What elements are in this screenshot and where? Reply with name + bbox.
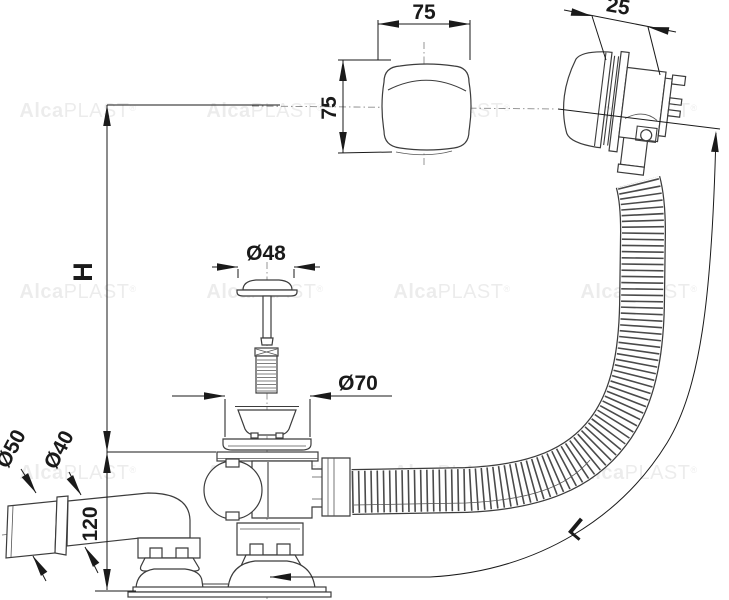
ext-line (648, 27, 660, 75)
label-height-H: H (68, 262, 98, 282)
overflow-fitting (556, 45, 688, 178)
plug-stem (263, 296, 271, 338)
label-strainer-diameter: Ø70 (338, 372, 378, 395)
threaded-stem (256, 356, 277, 393)
technical-drawing-canvas: AlcaPLAST® (0, 0, 729, 600)
label-knob-width: 75 (412, 1, 436, 24)
ball-clip-bottom (226, 512, 239, 520)
hose-union-nut (322, 458, 350, 516)
base-plate-lower (128, 592, 331, 597)
ext-line (338, 152, 392, 153)
knob-outline (382, 64, 471, 150)
outlet-socket (6, 501, 57, 558)
overflow-cap (559, 47, 612, 147)
ball-joint (204, 461, 262, 519)
lower-union-nut (237, 523, 303, 555)
plug-cap-flange (237, 290, 297, 296)
bath-waste-overflow-drawing: AlcaPLAST® (0, 0, 729, 600)
overflow-tick-2 (668, 110, 681, 117)
base-dome-left (136, 569, 203, 588)
corrugated-hose (352, 182, 643, 505)
overflow-tick-1 (669, 98, 682, 105)
label-elbow-height: 120 (79, 506, 102, 541)
base-plate-upper (133, 587, 326, 592)
strainer-foot-left (251, 433, 258, 438)
plug-cap (243, 280, 292, 290)
outlet-collar-ring (55, 496, 68, 555)
overflow-tab (672, 75, 686, 86)
strainer-flange (223, 439, 311, 450)
plug-stem-tip (261, 338, 273, 345)
label-overflow-depth: 25 (605, 0, 632, 20)
strainer-foot-right (276, 433, 283, 438)
strainer-bowl (238, 410, 296, 435)
label-plug-diameter: Ø48 (246, 242, 286, 265)
elbow-union-nut (138, 538, 200, 558)
label-knob-height: 75 (318, 96, 341, 120)
overflow-knob (382, 64, 471, 155)
ball-clip-top (226, 459, 239, 467)
base-dome-right (228, 561, 315, 588)
overflow-clamp-screw (640, 129, 652, 141)
label-hose-length-L: L (563, 512, 595, 546)
